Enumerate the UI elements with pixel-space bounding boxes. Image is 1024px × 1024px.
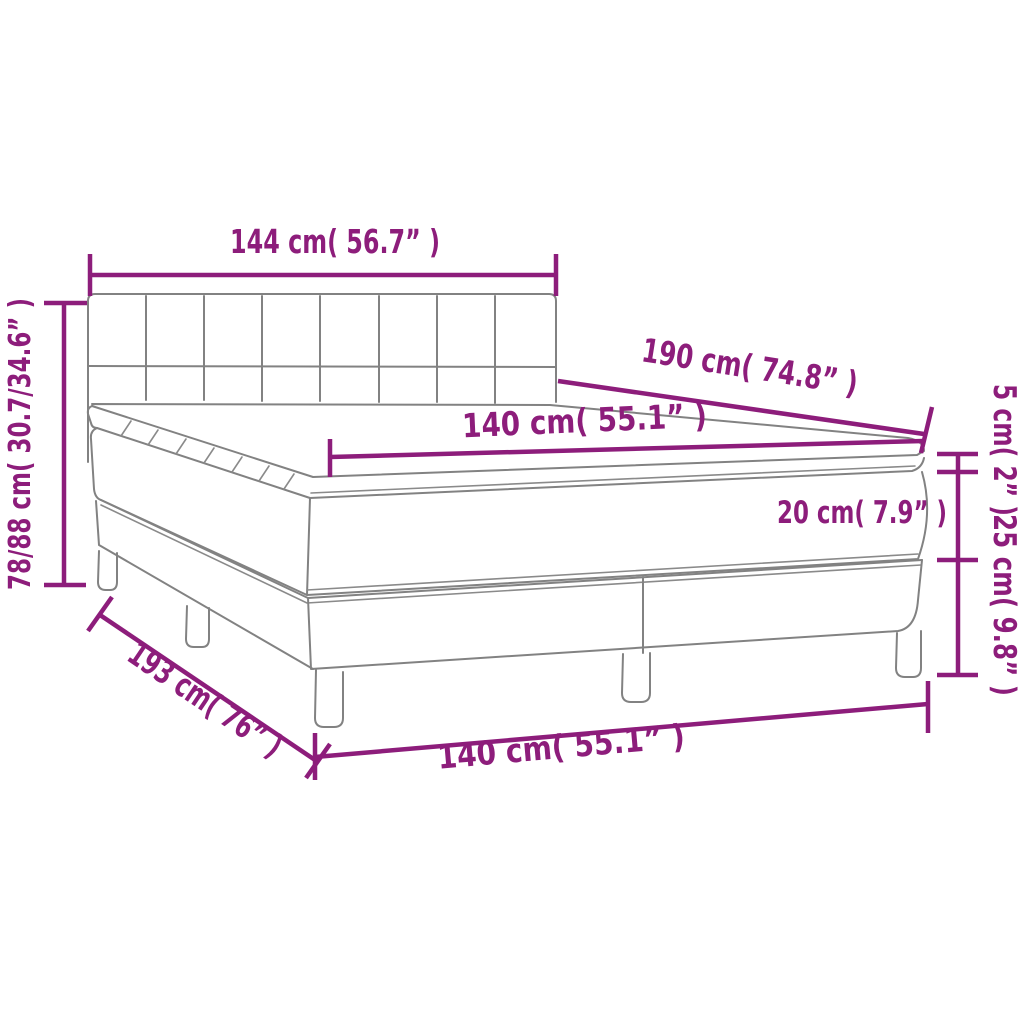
dimension-total-height: 78/88 cm( 30.7/34.6” ) [3, 298, 87, 590]
dimension-label-base-width-bottom: 140 cm( 55.1” ) [436, 716, 686, 776]
dimension-label-headboard-width: 144 cm( 56.7” ) [230, 222, 440, 261]
tick [306, 744, 330, 778]
topper-foot-face [310, 458, 924, 498]
leg-middle-front [622, 653, 650, 702]
topper-left-face [88, 406, 310, 498]
topper-foot-seam2 [311, 466, 915, 493]
dimension-line [330, 441, 923, 457]
dimension-label-bed-length: 190 cm( 74.8” ) [639, 330, 860, 403]
mattress-foot-face [307, 472, 927, 595]
dimension-label-base-length: 193 cm( 76” ) [121, 634, 290, 766]
dimension-label-base-height: 25 cm( 9.8” ) [986, 514, 1022, 696]
headboard-row-seam [88, 366, 556, 367]
diagram-canvas: 144 cm( 56.7” ) 78/88 cm( 30.7/34.6” ) 1… [0, 0, 1024, 1024]
dimension-label-mattress-width: 140 cm( 55.1” ) [461, 396, 707, 446]
headboard-grid-columns [146, 296, 495, 403]
topper-seam-hatches [121, 421, 294, 489]
leg-mid-left [186, 606, 209, 647]
leg-near-corner [315, 670, 343, 727]
leg-back-left [98, 551, 117, 590]
tick [921, 407, 932, 453]
bed-dimension-diagram: 144 cm( 56.7” ) 78/88 cm( 30.7/34.6” ) 1… [0, 0, 1024, 1024]
dimension-label-topper-height: 5 cm( 2” ) [986, 384, 1022, 516]
dimension-headboard-width: 144 cm( 56.7” ) [90, 222, 556, 296]
leg-front-right [896, 631, 921, 677]
dimension-label-mattress-height: 20 cm( 7.9” ) [777, 495, 947, 531]
tick [88, 597, 112, 631]
dimension-label-total-height: 78/88 cm( 30.7/34.6” ) [3, 298, 38, 590]
